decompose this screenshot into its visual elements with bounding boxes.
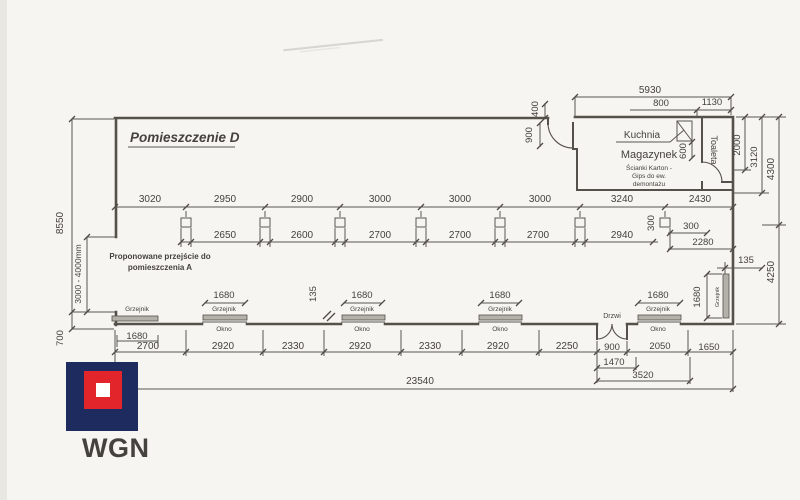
- dim-top-5: 3000: [449, 194, 472, 205]
- dim-mid-6: 2940: [611, 230, 634, 241]
- dim-top-4: 3000: [369, 194, 392, 205]
- door-label: Drzwi: [603, 313, 621, 320]
- dim-1680-right: 1680: [692, 286, 703, 307]
- dim-top-6: 3000: [529, 194, 552, 205]
- dim-2000: 2000: [732, 134, 743, 155]
- window-label-4: Okno: [650, 326, 666, 333]
- dim-mid-2: 2600: [291, 230, 314, 241]
- dim-bot-1: 2700: [137, 341, 160, 352]
- dim-top-2: 2950: [214, 194, 237, 205]
- dim-5930: 5930: [639, 85, 662, 96]
- dim-mid-3: 2700: [369, 230, 392, 241]
- dim-400: 400: [530, 101, 541, 117]
- dim-1680-w1: 1680: [213, 290, 234, 301]
- dim-2280: 2280: [692, 237, 713, 248]
- scan-edge-shade: [0, 0, 7, 500]
- dim-8550: 8550: [55, 211, 66, 234]
- dim-300-vertical: 300: [646, 215, 657, 231]
- dim-3520: 3520: [632, 370, 653, 381]
- dim-bot-10: 1650: [698, 342, 719, 353]
- logo-white-square: [96, 383, 110, 397]
- dim-bot-8: 900: [604, 342, 620, 353]
- room-toaleta: Toaleta: [709, 135, 719, 164]
- logo-text: WGN: [82, 433, 149, 463]
- dim-600: 600: [678, 143, 689, 159]
- dim-900-door-top: 900: [524, 127, 535, 143]
- dim-bot-4: 2920: [349, 341, 372, 352]
- passage-note-1: Proponowane przejście do: [109, 252, 210, 261]
- dim-3120: 3120: [749, 146, 760, 167]
- radiator-label-right: Grzejnik: [715, 287, 721, 307]
- radiator-label-1: Grzejnik: [125, 306, 150, 313]
- dim-4300: 4300: [766, 157, 777, 180]
- window-label-1: Okno: [216, 326, 232, 333]
- magazynek-note-1: Ścianki Karton -: [626, 163, 672, 172]
- dim-800: 800: [653, 98, 669, 109]
- dim-bot-2: 2920: [212, 341, 235, 352]
- dim-mid-1: 2650: [214, 230, 237, 241]
- dim-1470: 1470: [603, 357, 624, 368]
- dim-4250: 4250: [766, 260, 777, 283]
- dim-top-8: 2430: [689, 194, 712, 205]
- dim-300-horizontal: 300: [683, 221, 699, 232]
- radiator-label-4: Grzejnik: [488, 306, 513, 313]
- dim-1680-w2: 1680: [351, 290, 372, 301]
- dim-top-3: 2900: [291, 194, 314, 205]
- dim-top-1: 3020: [139, 194, 162, 205]
- window-label-2: Okno: [354, 326, 370, 333]
- dim-bot-7: 2250: [556, 341, 579, 352]
- dim-bot-9: 2050: [649, 341, 670, 352]
- room-kuchnia: Kuchnia: [624, 130, 661, 141]
- dim-bot-6: 2920: [487, 341, 510, 352]
- dim-1680-w3: 1680: [489, 290, 510, 301]
- room-title: Pomieszczenie D: [130, 130, 240, 145]
- dim-mid-4: 2700: [449, 230, 472, 241]
- passage-note-2: pomieszczenia A: [128, 263, 192, 272]
- dim-1680-w4: 1680: [647, 290, 668, 301]
- radiator-label-5: Grzejnik: [646, 306, 671, 313]
- dim-mid-5: 2700: [527, 230, 550, 241]
- window-label-3: Okno: [492, 326, 508, 333]
- dim-23540: 23540: [406, 376, 434, 387]
- dim-bot-5: 2330: [419, 341, 442, 352]
- room-magazynek: Magazynek: [621, 149, 678, 161]
- dim-1130: 1130: [702, 97, 722, 108]
- dim-range-3000-4000: 3000 - 4000mm: [73, 244, 83, 304]
- floor-plan-canvas: Pomieszczenie D 5930 800 1130 400 900 60…: [0, 0, 800, 500]
- dim-135-bottom: 135: [308, 286, 319, 302]
- dim-700: 700: [55, 330, 66, 346]
- radiator-label-2: Grzejnik: [212, 306, 237, 313]
- magazynek-note-2: Gips do ew.: [632, 173, 666, 180]
- dim-top-7: 3240: [611, 194, 634, 205]
- magazynek-note-3: demontażu: [633, 181, 666, 188]
- dim-bot-3: 2330: [282, 341, 305, 352]
- radiator-label-3: Grzejnik: [350, 306, 375, 313]
- dim-135-right: 135: [738, 255, 754, 266]
